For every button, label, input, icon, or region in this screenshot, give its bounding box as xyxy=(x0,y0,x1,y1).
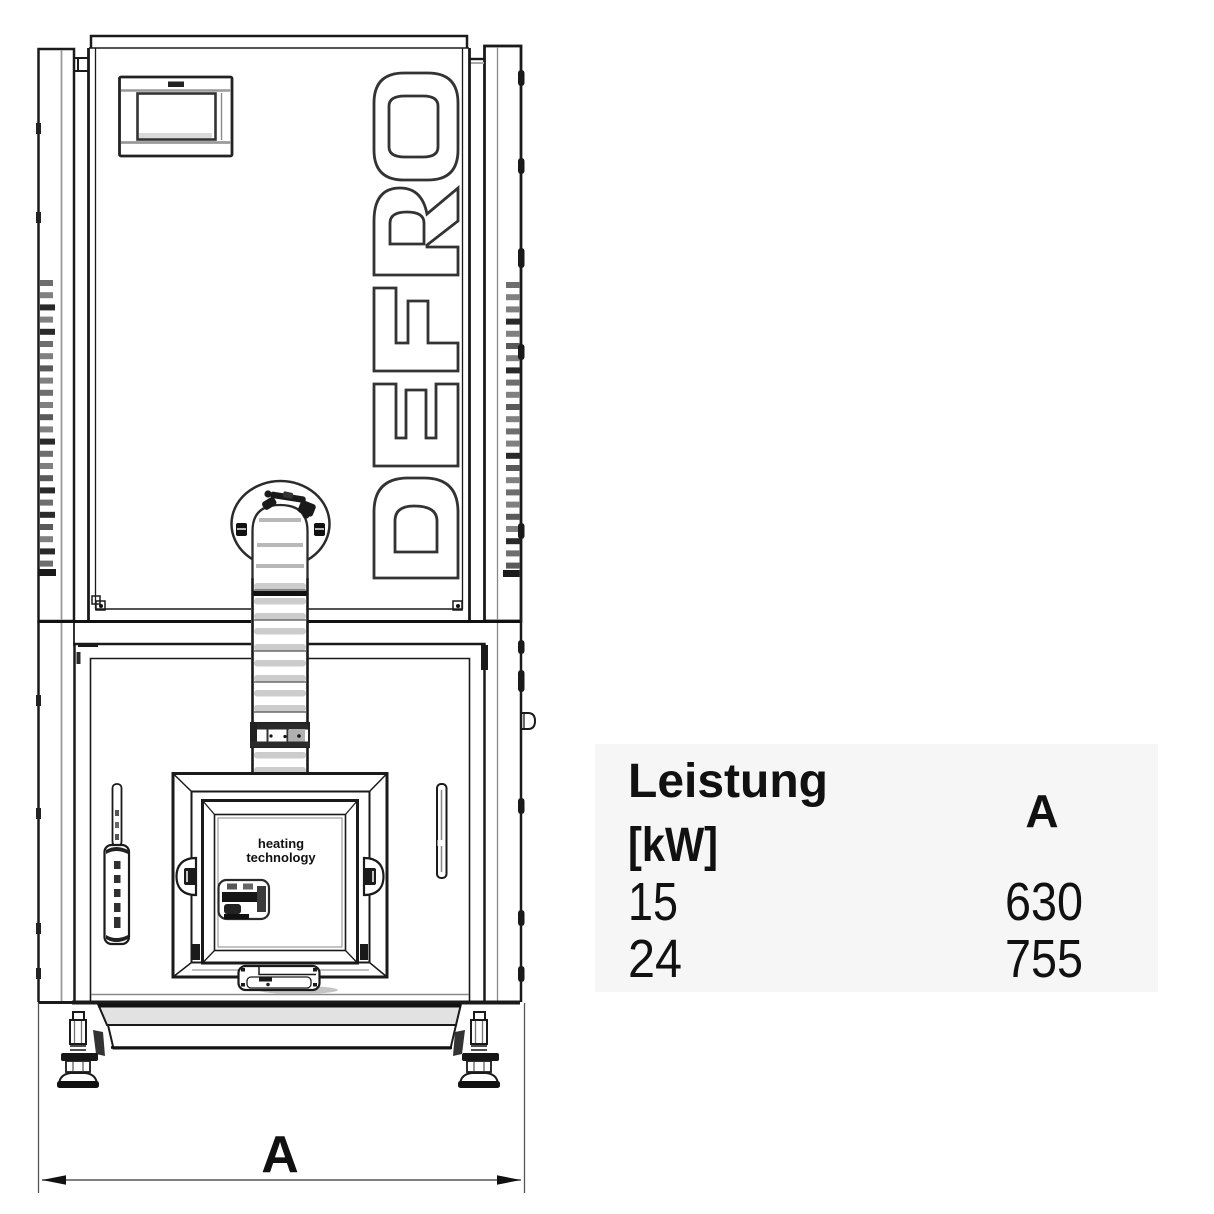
svg-text:technology: technology xyxy=(246,850,316,865)
svg-text:630: 630 xyxy=(1005,872,1083,932)
svg-text:24: 24 xyxy=(628,929,682,989)
svg-text:heating: heating xyxy=(258,836,304,851)
svg-text:A: A xyxy=(1025,785,1058,837)
svg-text:Leistung: Leistung xyxy=(628,755,828,808)
svg-text:15: 15 xyxy=(628,872,678,932)
svg-text:A: A xyxy=(261,1126,299,1184)
svg-text:[kW]: [kW] xyxy=(628,819,718,872)
svg-text:755: 755 xyxy=(1005,929,1083,989)
